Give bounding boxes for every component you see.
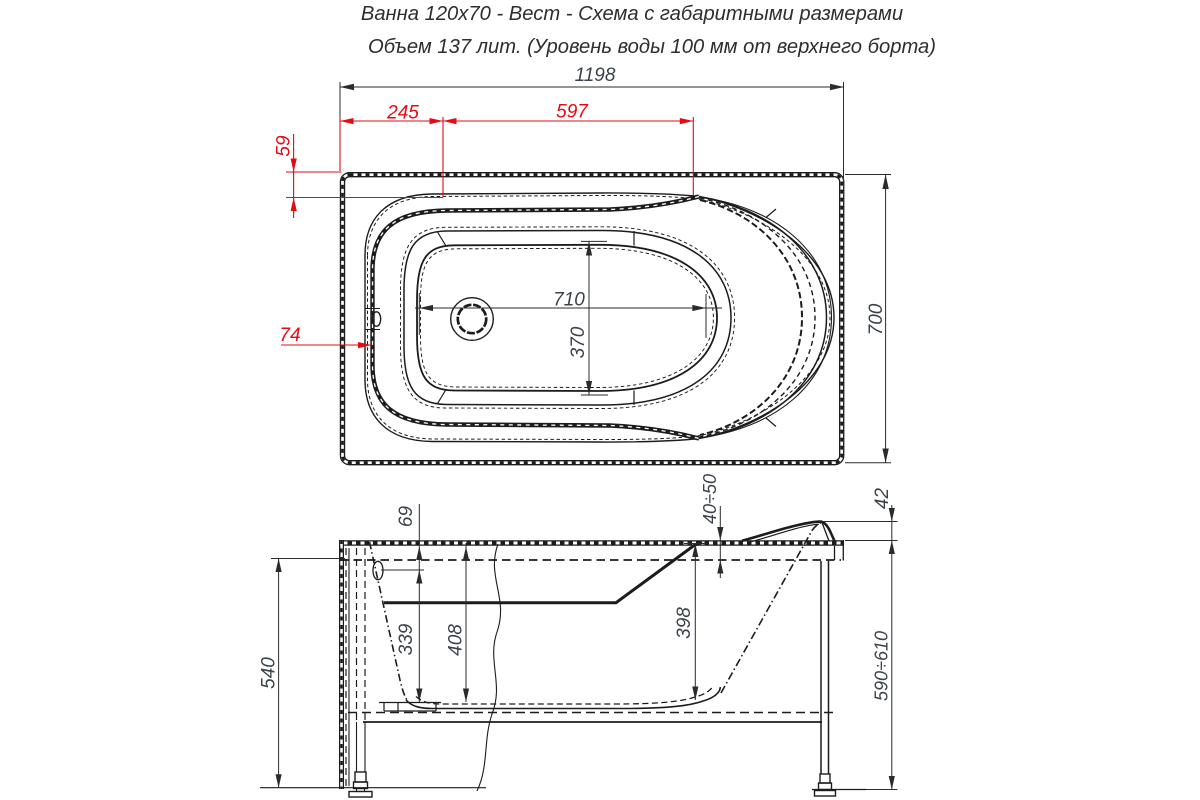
svg-text:597: 597 <box>556 102 589 123</box>
svg-text:339: 339 <box>396 623 417 655</box>
svg-text:700: 700 <box>866 303 887 335</box>
svg-text:Ванна 120х70 - Вест - Схема с: Ванна 120х70 - Вест - Схема с габаритным… <box>361 3 903 25</box>
svg-text:74: 74 <box>279 325 300 346</box>
svg-text:710: 710 <box>553 290 585 311</box>
svg-text:408: 408 <box>446 624 467 656</box>
svg-text:370: 370 <box>568 326 589 358</box>
svg-text:42: 42 <box>872 488 893 510</box>
svg-text:40÷50: 40÷50 <box>700 474 720 524</box>
svg-text:1198: 1198 <box>575 65 616 86</box>
svg-text:Объем 137 лит. (Уровень воды 1: Объем 137 лит. (Уровень воды 100 мм от в… <box>368 36 936 58</box>
svg-text:590÷610: 590÷610 <box>872 631 892 701</box>
svg-text:540: 540 <box>259 657 280 689</box>
svg-text:59: 59 <box>274 135 295 157</box>
svg-text:245: 245 <box>386 103 419 124</box>
svg-text:398: 398 <box>674 607 695 639</box>
svg-text:69: 69 <box>396 506 417 528</box>
